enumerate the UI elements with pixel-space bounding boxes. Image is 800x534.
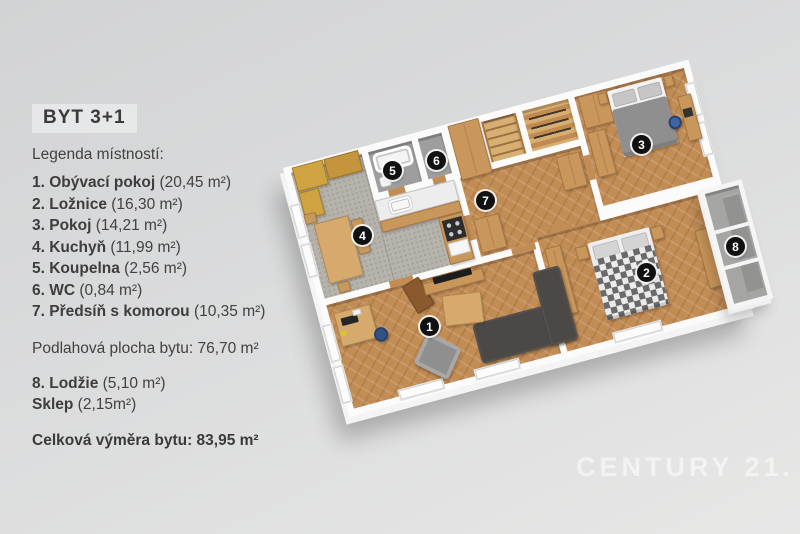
room-badge-3: 3 [632, 135, 651, 154]
badge-number: 4 [359, 229, 366, 243]
room-area: (5,10 m²) [103, 375, 166, 392]
room-label: 8. Lodžie [32, 375, 98, 392]
room-badge-4: 4 [353, 226, 372, 245]
room-badge-8: 8 [726, 237, 745, 256]
floorplan-image: BYT 3+1 Legenda místností: 1. Obývací po… [0, 0, 800, 534]
badge-number: 6 [433, 154, 440, 168]
legend-room-line-3: 3. Pokoj (14,21 m²) [32, 215, 308, 237]
room-label: 7. Předsíň s komorou [32, 303, 190, 320]
room-area: (14,21 m²) [96, 217, 168, 234]
room-area: (0,84 m²) [79, 282, 142, 299]
legend-room-line-6: 6. WC (0,84 m²) [32, 280, 308, 302]
page-title: BYT 3+1 [32, 104, 137, 133]
legend-heading: Legenda místností: [32, 146, 308, 164]
legend-room-line-1: 1. Obývací pokoj (20,45 m²) [32, 172, 308, 194]
room-label: 1. Obývací pokoj [32, 174, 155, 191]
legend-panel: BYT 3+1 Legenda místností: 1. Obývací po… [32, 104, 308, 450]
legend-extra-line-1: 8. Lodžie (5,10 m²) [32, 373, 308, 395]
badge-number: 2 [643, 266, 650, 280]
room-area: (2,56 m²) [124, 260, 187, 277]
legend-room-line-5: 5. Koupelna (2,56 m²) [32, 258, 308, 280]
total-area-line: Celková výměra bytu: 83,95 m² [32, 432, 308, 450]
staircase [522, 99, 579, 152]
room-badge-5: 5 [383, 161, 402, 180]
coffee-table [442, 291, 485, 326]
legend-room-line-7: 7. Předsíň s komorou (10,35 m²) [32, 301, 308, 323]
room-area: (2,15m²) [78, 396, 137, 413]
legend-room-line-2: 2. Ložnice (16,30 m²) [32, 194, 308, 216]
room-area: (16,30 m²) [111, 196, 183, 213]
room-label: 3. Pokoj [32, 217, 91, 234]
room-area: (10,35 m²) [194, 303, 266, 320]
legend-room-line-4: 4. Kuchyň (11,99 m²) [32, 237, 308, 259]
legend-extras: 8. Lodžie (5,10 m²) Sklep (2,15m²) [32, 373, 308, 416]
room-label: 6. WC [32, 282, 75, 299]
legend-extra-line-2: Sklep (2,15m²) [32, 394, 308, 416]
room-label: 4. Kuchyň [32, 239, 106, 256]
floor-area-line: Podlahová plocha bytu: 76,70 m² [32, 338, 308, 359]
badge-number: 3 [638, 138, 645, 152]
room-badge-7: 7 [476, 191, 495, 210]
room-badge-2: 2 [637, 263, 656, 282]
room-label: 2. Ložnice [32, 196, 107, 213]
room-badge-1: 1 [420, 317, 439, 336]
room-area: (20,45 m²) [160, 174, 232, 191]
badge-number: 5 [389, 164, 396, 178]
room-area: (11,99 m²) [110, 239, 180, 256]
room-label: 5. Koupelna [32, 260, 120, 277]
badge-number: 1 [426, 320, 433, 334]
room-label: Sklep [32, 396, 73, 413]
century21-watermark: CENTURY 21. [576, 452, 794, 483]
badge-number: 8 [732, 240, 739, 254]
badge-number: 7 [482, 194, 489, 208]
room-badge-6: 6 [427, 151, 446, 170]
